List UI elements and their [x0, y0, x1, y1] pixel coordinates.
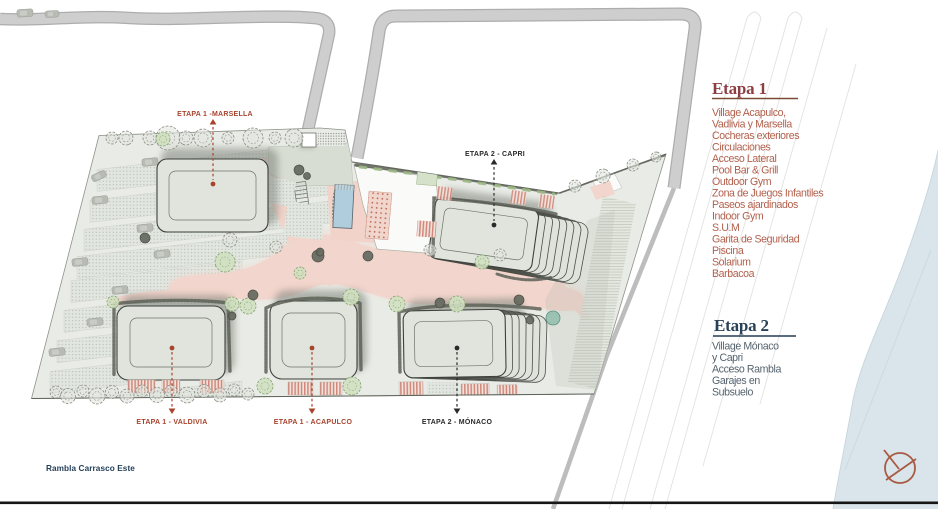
- svg-text:Paseos ajardinados: Paseos ajardinados: [712, 199, 798, 211]
- svg-text:Subsuelo: Subsuelo: [712, 387, 753, 399]
- svg-text:y Capri: y Capri: [712, 352, 743, 364]
- svg-text:Vadlivia y Marsella: Vadlivia y Marsella: [712, 119, 792, 131]
- svg-text:Piscina: Piscina: [712, 245, 744, 257]
- svg-text:Village Acapulco,: Village Acapulco,: [712, 107, 786, 119]
- svg-text:Etapa 2: Etapa 2: [714, 316, 769, 335]
- svg-text:Cocheras exteriores: Cocheras exteriores: [712, 130, 799, 142]
- svg-text:Indoor Gym: Indoor Gym: [712, 211, 764, 223]
- svg-text:Rambla Carrasco Este: Rambla Carrasco Este: [46, 464, 135, 473]
- svg-text:Circulaciones: Circulaciones: [712, 142, 770, 154]
- svg-text:Solarium: Solarium: [712, 257, 751, 269]
- svg-text:ETAPA 1 - VALDIVIA: ETAPA 1 - VALDIVIA: [136, 419, 207, 426]
- svg-text:ETAPA 2 - MÓNACO: ETAPA 2 - MÓNACO: [422, 417, 493, 426]
- svg-text:Zona de Juegos Infantiles: Zona de Juegos Infantiles: [712, 188, 823, 200]
- svg-text:S.U.M: S.U.M: [712, 222, 739, 234]
- svg-text:ETAPA 1 -MARSELLA: ETAPA 1 -MARSELLA: [177, 111, 253, 118]
- svg-text:ETAPA 2 - CAPRI: ETAPA 2 - CAPRI: [465, 151, 525, 158]
- svg-text:Acceso Lateral: Acceso Lateral: [712, 153, 777, 165]
- svg-text:Village Mónaco: Village Mónaco: [712, 341, 779, 353]
- svg-text:Outdoor Gym: Outdoor Gym: [712, 176, 772, 188]
- svg-text:Etapa 1: Etapa 1: [712, 79, 767, 98]
- svg-text:Garajes en: Garajes en: [712, 375, 760, 387]
- svg-text:ETAPA 1 - ACAPULCO: ETAPA 1 - ACAPULCO: [274, 419, 353, 426]
- svg-text:Acceso Rambla: Acceso Rambla: [712, 364, 781, 376]
- svg-text:Garita de Seguridad: Garita de Seguridad: [712, 234, 800, 246]
- svg-text:Pool Bar & Grill: Pool Bar & Grill: [712, 165, 778, 177]
- svg-text:Barbacoa: Barbacoa: [712, 268, 755, 280]
